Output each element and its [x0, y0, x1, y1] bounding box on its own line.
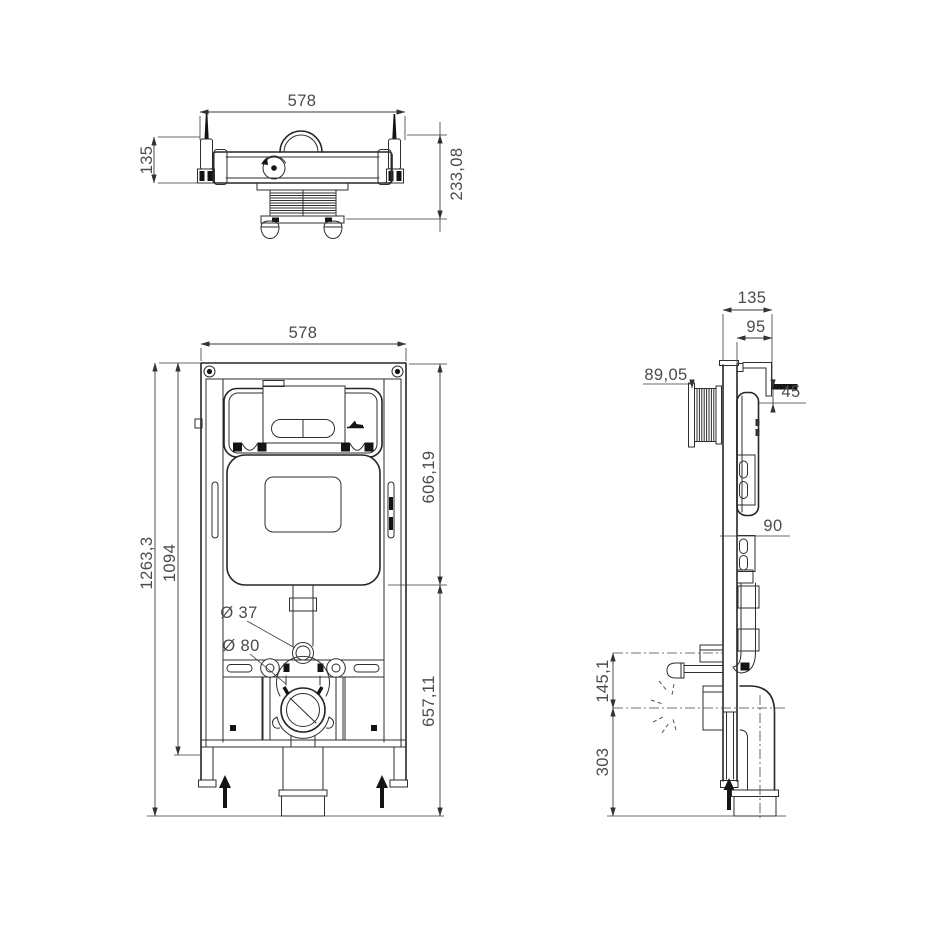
dim-label-outlet: Ø 80	[222, 637, 259, 655]
dim-label-rail: 90	[763, 517, 782, 535]
dim-label-upper-section: 606,19	[420, 451, 438, 504]
dim-label-bracket-offset: 45	[781, 383, 800, 401]
dim-label-fixing-stud-height: 145,1	[594, 659, 612, 702]
dim-label-inlet-offset: 89,05	[644, 366, 687, 384]
dim-label-outlet-center-height: 303	[594, 748, 612, 777]
clip	[365, 443, 374, 452]
dim-label-frame-depth: 95	[746, 318, 765, 336]
dim-label-top-width: 578	[288, 92, 317, 110]
drawing-page: 578 135 233,08	[0, 0, 950, 950]
dim-label-flush-pipe: Ø 37	[220, 604, 257, 622]
clip	[233, 443, 242, 452]
dim-label-total-depth: 135	[738, 289, 767, 307]
background	[0, 0, 950, 950]
dim-label-top-side-height: 135	[138, 146, 156, 175]
dim-label-frame-height: 1094	[161, 544, 179, 582]
clip	[258, 443, 267, 452]
dim-label-top-total-height: 233,08	[448, 148, 466, 201]
dim-label-front-width: 578	[289, 324, 318, 342]
technical-drawing: 578 135 233,08	[0, 0, 950, 950]
fixing-hole-left	[261, 659, 280, 678]
dim-label-total-height: 1263,3	[138, 537, 156, 590]
dim-label-lower-section: 657,11	[420, 675, 438, 727]
fixing-hole-right	[327, 659, 346, 678]
clip	[341, 443, 350, 452]
cistern-tank	[227, 455, 380, 585]
